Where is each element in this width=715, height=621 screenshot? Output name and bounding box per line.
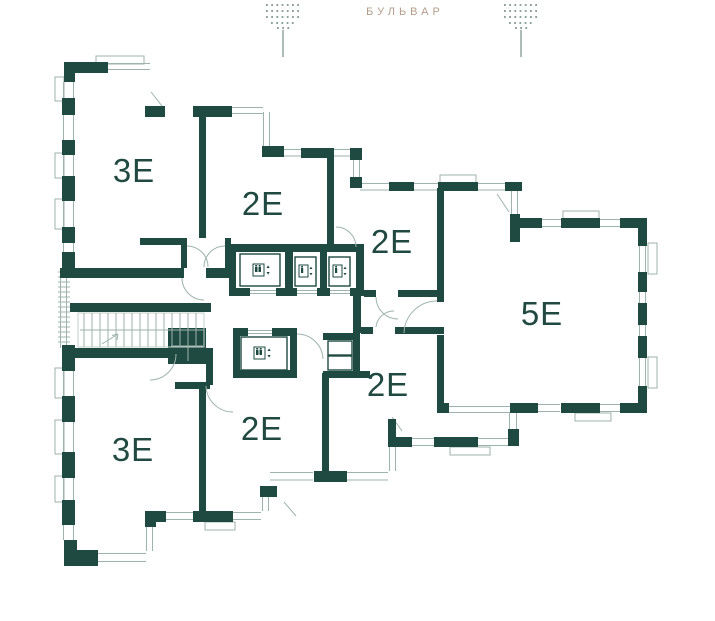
apartment-label-2e-upper-middle[interactable]: 2Е [237,185,289,223]
apartment-label-3e-bottom-left[interactable]: 3Е [107,431,159,469]
service-shaft [168,328,206,364]
apartment-label-5e-right[interactable]: 5Е [516,295,568,333]
stair-exterior-wall [58,268,70,348]
tree-icon [266,5,300,57]
elevator-bank [229,244,364,296]
tree-icon [504,5,538,57]
floor-plan-page: БУЛЬВАР [0,0,715,621]
floor-plan [0,0,715,621]
apartment-label-2e-lower-middle[interactable]: 2Е [236,410,288,448]
apartment-label-2e-lower-right[interactable]: 2Е [362,366,414,404]
apartment-label-2e-middle-right[interactable]: 2Е [366,223,418,261]
apartment-label-3e-top-left[interactable]: 3Е [108,152,160,190]
